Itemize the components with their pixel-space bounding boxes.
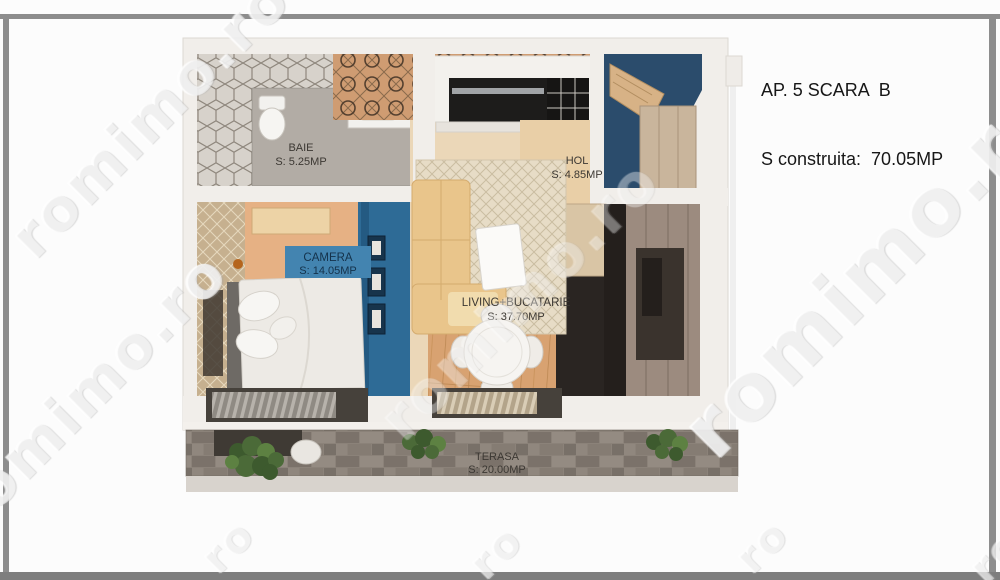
room-camera	[197, 202, 410, 414]
terrace	[186, 429, 738, 492]
plan-shadow	[730, 80, 736, 430]
kitchen	[556, 204, 700, 398]
hol-label: HOL	[566, 155, 589, 167]
terasa-area: S: 20.00MP	[468, 464, 525, 476]
baie-label: BAIE	[288, 142, 313, 154]
hol-area: S: 4.85MP	[551, 169, 602, 181]
wall-baie-camera	[197, 186, 415, 202]
dresser	[252, 208, 330, 234]
oven	[642, 258, 662, 316]
clock	[233, 259, 243, 269]
living-area: S: 37.70MP	[487, 311, 544, 323]
camera-area: S: 14.05MP	[299, 265, 356, 277]
toilet	[259, 96, 285, 140]
terasa-label: TERASA	[475, 451, 520, 463]
living-label: LIVING+BUCATARIE	[462, 297, 571, 309]
bedroom-side-window	[203, 290, 223, 376]
living-window	[432, 388, 562, 418]
baie-area: S: 5.25MP	[275, 156, 326, 168]
beige-curtain	[437, 392, 537, 414]
bedroom-window	[206, 388, 368, 422]
camera-label: CAMERA	[303, 252, 353, 264]
listing-photo: AP. 5 SCARA B S construita: 70.05MP	[0, 0, 1000, 580]
gray-curtain	[212, 392, 336, 418]
flower-pot	[291, 440, 321, 464]
floor-plan: BAIE S: 5.25MP CAMERA S: 14.05MP HOL S: …	[0, 0, 1000, 580]
coffee-table	[475, 224, 526, 291]
wardrobe	[640, 106, 696, 192]
